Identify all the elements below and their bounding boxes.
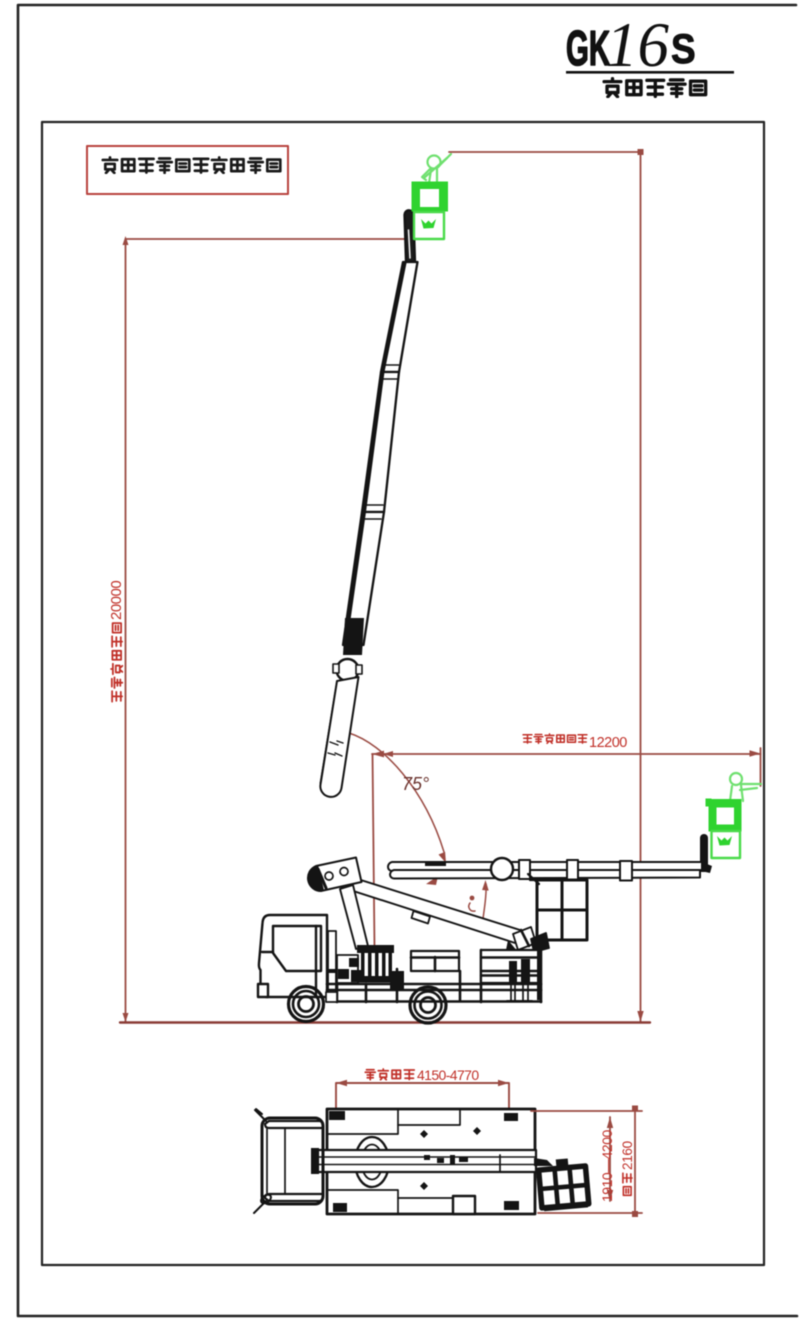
- svg-text:12200: 12200: [589, 735, 627, 751]
- svg-text:20000: 20000: [108, 581, 125, 620]
- svg-text:4150-4770: 4150-4770: [417, 1067, 479, 1083]
- svg-text:2160: 2160: [620, 1141, 635, 1170]
- svg-text:1910—4200: 1910—4200: [599, 1129, 615, 1202]
- svg-text:S: S: [671, 26, 696, 73]
- svg-text:75°: 75°: [402, 774, 429, 794]
- svg-text:16: 16: [606, 10, 670, 80]
- svg-text:GK: GK: [566, 20, 610, 76]
